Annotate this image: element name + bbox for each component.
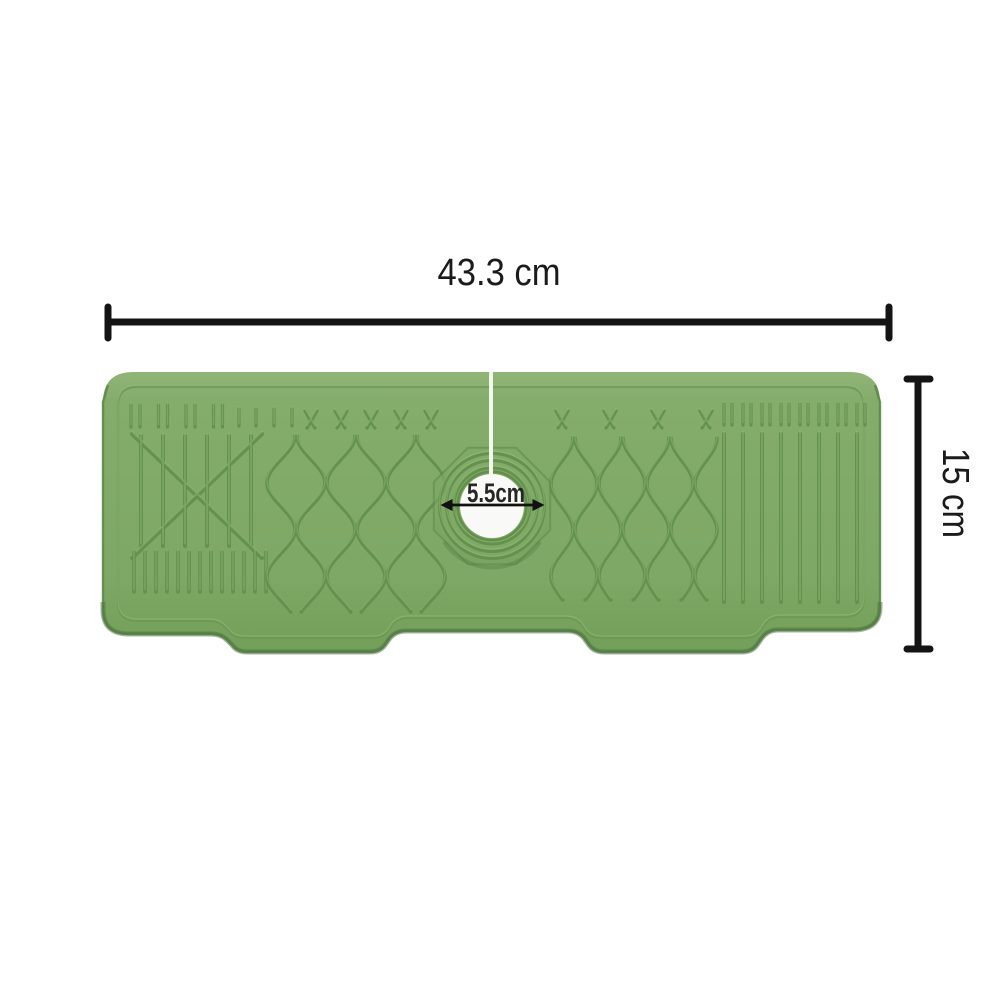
svg-text:5.5cm: 5.5cm	[467, 478, 525, 508]
svg-text:43.3 cm: 43.3 cm	[438, 252, 561, 294]
svg-text:15 cm: 15 cm	[934, 448, 976, 538]
